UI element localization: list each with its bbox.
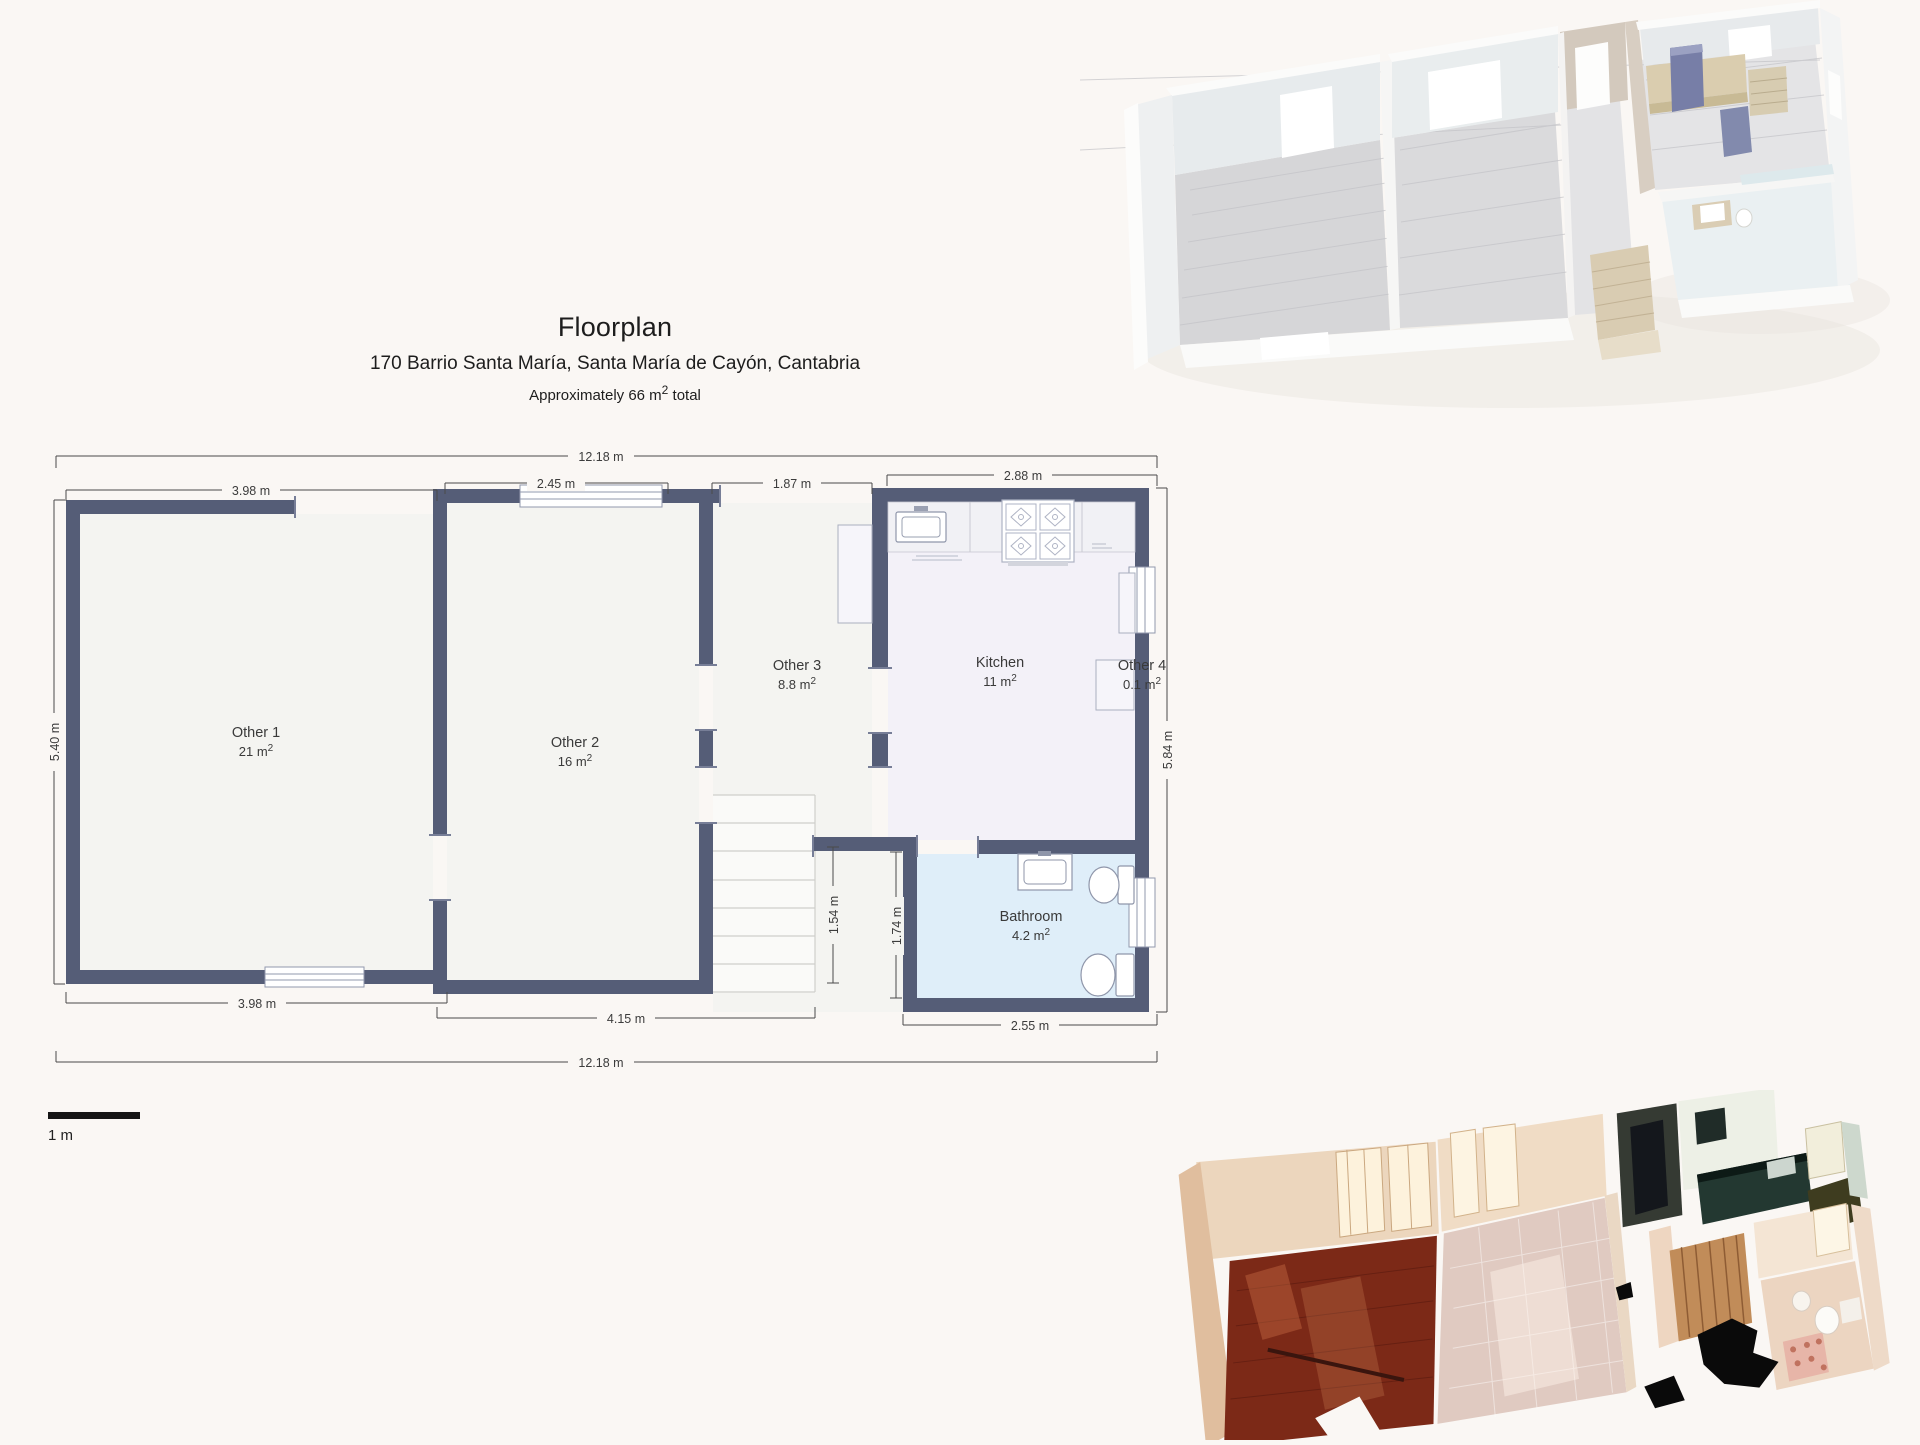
- room-label-other2: Other 2 16 m2: [551, 735, 599, 769]
- staircase: [713, 795, 815, 993]
- blue-bench-3d: [1720, 106, 1752, 157]
- floorplan-header: Floorplan 170 Barrio Santa María, Santa …: [0, 312, 1230, 404]
- toilet-icon: [1089, 866, 1134, 904]
- dim-bottom-other1: 3.98 m: [238, 997, 276, 1011]
- dim-bottom-other2: 4.15 m: [607, 1012, 645, 1026]
- address-line: 170 Barrio Santa María, Santa María de C…: [0, 353, 1230, 375]
- dim-stair-opening: 1.54 m: [827, 896, 841, 934]
- total-area-note: Approximately 66 m2 total: [0, 383, 1230, 404]
- room-label-bathroom: Bathroom 4.2 m2: [1000, 909, 1063, 943]
- dim-top-other1: 3.98 m: [232, 484, 270, 498]
- render-window: [1428, 60, 1502, 130]
- hall-cabinet: [838, 525, 872, 623]
- toilet-3d: [1736, 209, 1752, 227]
- dim-bottom-total: 12.18 m: [578, 1056, 623, 1070]
- radiator: [1119, 573, 1135, 633]
- room-label-kitchen: Kitchen 11 m2: [976, 655, 1024, 689]
- bath-sink-3d: [1700, 203, 1725, 223]
- dollhouse-render-3d: [1080, 0, 1920, 440]
- dim-right-kitchen: 5.84 m: [1161, 731, 1175, 769]
- dollhouse-scan-3d: [1170, 1090, 1920, 1440]
- dim-top-kitchen: 2.88 m: [1004, 469, 1042, 483]
- render-door-opening: [1280, 86, 1334, 158]
- page-title: Floorplan: [0, 312, 1230, 343]
- room-label-other4: Other 4 0.1 m2: [1118, 658, 1166, 692]
- dim-left-other1: 5.40 m: [48, 723, 62, 761]
- scale-bar-label: 1 m: [48, 1127, 73, 1144]
- room-label-other1: Other 1 21 m2: [232, 725, 280, 759]
- render-3d-svg: [1080, 0, 1920, 440]
- scan-toilet: [1815, 1306, 1840, 1335]
- window-other1-bottom: [265, 967, 364, 987]
- floorplan-drawing: 12.18 m 2.88 m 1.87 m 2.45 m 3.98 m 5.40…: [40, 440, 1205, 1160]
- bath-sink-icon: [1018, 851, 1072, 890]
- scan-3d-svg: [1170, 1090, 1920, 1440]
- floorplan-2d: 12.18 m 2.88 m 1.87 m 2.45 m 3.98 m 5.40…: [40, 440, 1205, 1160]
- dim-top-other2: 2.45 m: [537, 477, 575, 491]
- stove-icon: [1002, 500, 1074, 566]
- scan-room-wood: [1178, 1142, 1446, 1440]
- render-stairs: [1590, 245, 1661, 360]
- dim-bottom-bathroom: 2.55 m: [1011, 1019, 1049, 1033]
- scan-bidet: [1792, 1291, 1811, 1312]
- room-label-other3: Other 3 8.8 m2: [773, 658, 821, 692]
- dim-top-total: 12.18 m: [578, 450, 623, 464]
- dim-top-corridor: 1.87 m: [773, 477, 811, 491]
- dim-bathroom-height: 1.74 m: [890, 907, 904, 945]
- toilet2-icon: [1081, 954, 1134, 996]
- scale-bar: 1 m: [48, 1112, 140, 1144]
- scan-room-tile: [1427, 1113, 1637, 1424]
